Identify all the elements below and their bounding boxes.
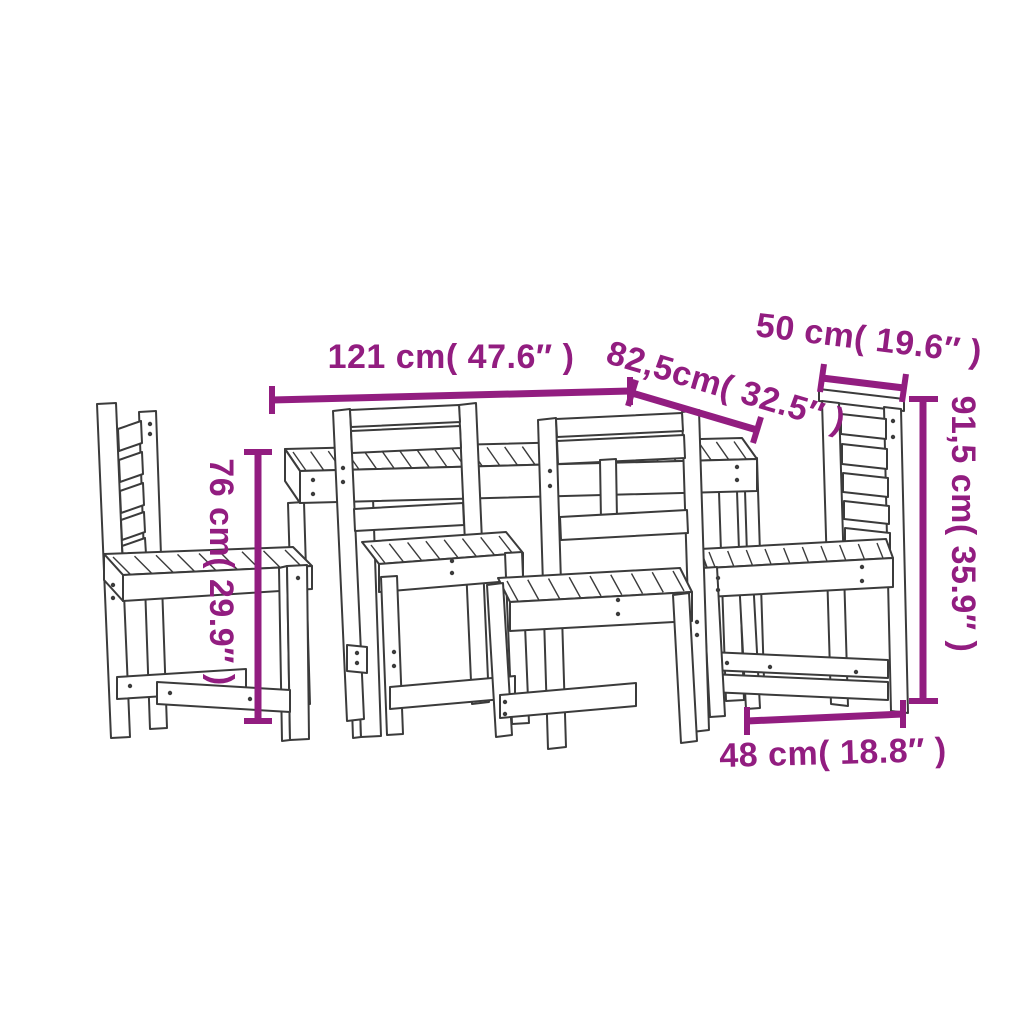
dimension-label-chair-height: 91,5 cm( 35.9″ ): [944, 396, 982, 653]
dimension-chair-depth: 48 cm( 18.8″ ): [719, 700, 947, 775]
front-center-chair-top-rail: [556, 413, 683, 437]
dimension-table-height: 76 cm( 29.9″ ): [202, 452, 272, 721]
front-left-chair-rail-3: [354, 503, 464, 531]
front-left-chair-front-leg-left: [381, 576, 403, 735]
dimension-label-table-height: 76 cm( 29.9″ ): [202, 458, 240, 685]
dimension-diagram: 121 cm( 47.6″ ) 82,5cm( 32.5″ ) 50 cm( 1…: [0, 0, 1024, 1024]
front-left-chair-rail-2: [351, 426, 461, 453]
dimension-label-table-length: 121 cm( 47.6″ ): [328, 338, 575, 376]
front-center-chair-rail-2: [557, 435, 685, 464]
left-chair-front-stretcher: [157, 682, 290, 712]
left-chair-back-slats: [118, 421, 146, 560]
dimension-chair-height: 91,5 cm( 35.9″ ): [909, 396, 982, 701]
dimension-label-chair-depth: 48 cm( 18.8″ ): [719, 731, 947, 775]
front-left-chair-bracket: [347, 645, 367, 673]
dimension-label-chair-width: 50 cm( 19.6″ ): [754, 306, 984, 371]
left-chair-front-leg: [287, 565, 309, 740]
front-center-chair-rail-3: [560, 510, 688, 540]
furniture-dimension-drawing: 121 cm( 47.6″ ) 82,5cm( 32.5″ ) 50 cm( 1…: [0, 0, 1024, 1024]
dimension-table-length: 121 cm( 47.6″ ): [272, 338, 630, 414]
front-left-chair-top-rail: [350, 405, 460, 427]
front-center-chair-connector-left: [600, 459, 617, 520]
right-chair-back-slats: [841, 414, 890, 549]
